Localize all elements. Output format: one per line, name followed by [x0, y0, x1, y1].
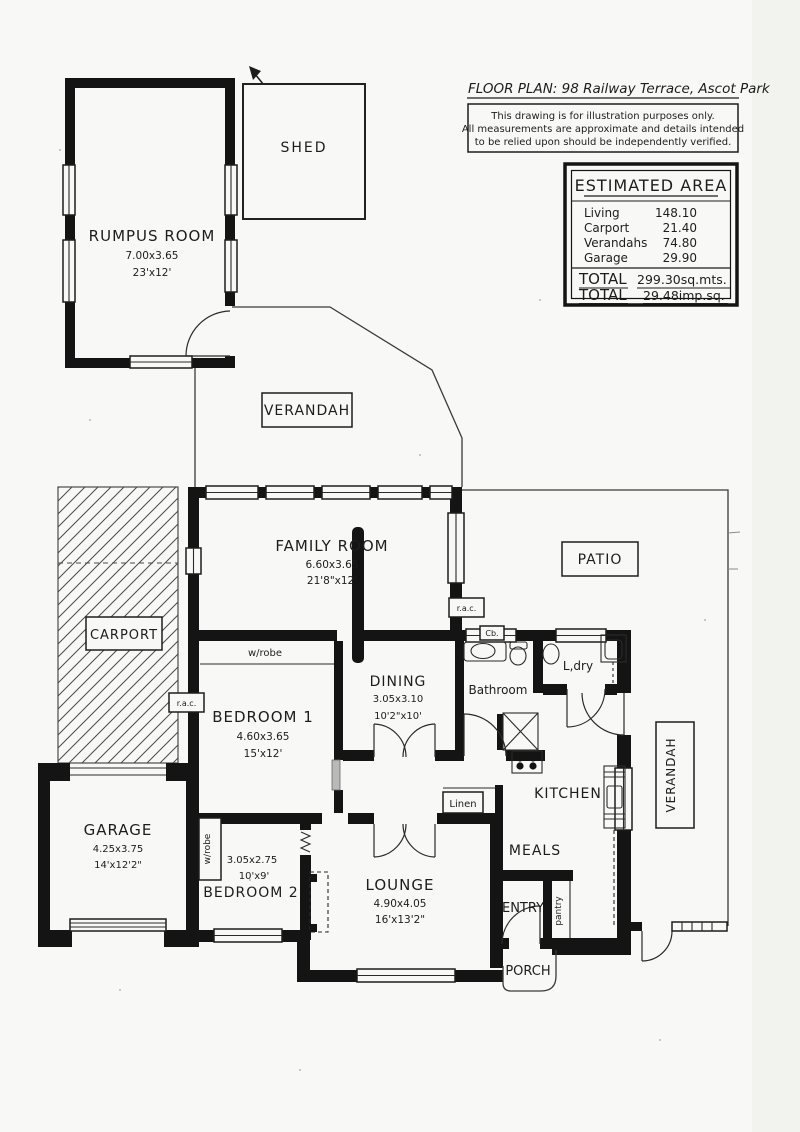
- verandah-top-text: VERANDAH: [264, 403, 350, 419]
- shed-room: SHED: [243, 84, 365, 219]
- bedroom1-dim-imperial: 15'x12': [244, 748, 283, 760]
- pantry-label: pantry: [554, 896, 564, 926]
- shed-label: SHED: [280, 140, 327, 156]
- family-dim-metric: 6.60x3.65: [306, 559, 359, 571]
- disclaimer-line-1: This drawing is for illustration purpose…: [490, 111, 714, 122]
- area-table-title: ESTIMATED AREA: [575, 176, 728, 195]
- rumpus-dim-metric: 7.00x3.65: [126, 250, 179, 262]
- dining-dim-metric: 3.05x3.10: [373, 694, 423, 705]
- carport-label: CARPORT: [90, 628, 158, 643]
- family-dim-imperial: 21'8"x12': [307, 575, 357, 587]
- entry-label: ENTRY: [502, 901, 544, 916]
- area-row-value: 29.90: [663, 251, 697, 265]
- patio-text: PATIO: [578, 552, 623, 568]
- rac-family-text: r.a.c.: [457, 604, 476, 613]
- linen-label: Linen: [449, 799, 476, 810]
- lounge-label: LOUNGE: [366, 876, 435, 894]
- area-row-value: 148.10: [655, 206, 697, 220]
- bathroom-label: Bathroom: [469, 683, 528, 697]
- floor-plan-drawing: FLOOR PLAN: 98 Railway Terrace, Ascot Pa…: [0, 0, 800, 1132]
- rumpus-room: RUMPUS ROOM 7.00x3.65 23'x12': [63, 78, 237, 368]
- disclaimer-line-3: to be relied upon should be independentl…: [475, 137, 732, 148]
- rumpus-dim-imperial: 23'x12': [133, 267, 172, 279]
- bedroom1-dim-metric: 4.60x3.65: [237, 731, 290, 743]
- lounge-dim-metric: 4.90x4.05: [374, 898, 427, 910]
- bedroom2-dim-imperial: 10'x9': [239, 871, 270, 882]
- verandah-top-label: VERANDAH: [262, 393, 352, 427]
- estimated-area-table: ESTIMATED AREA Living 148.10 Carport 21.…: [565, 164, 737, 305]
- bedroom2-robe-label: w/robe: [203, 833, 213, 864]
- area-total-label: TOTAL: [578, 286, 627, 304]
- laundry-label: L,dry: [563, 659, 593, 673]
- area-total-value: 29.48imp.sq.: [643, 288, 725, 303]
- verandah-right-text: VERANDAH: [664, 737, 678, 812]
- page-title: FLOOR PLAN: 98 Railway Terrace, Ascot Pa…: [468, 81, 771, 97]
- floor-plan-page: FLOOR PLAN: 98 Railway Terrace, Ascot Pa…: [0, 0, 800, 1132]
- title-block: FLOOR PLAN: 98 Railway Terrace, Ascot Pa…: [462, 81, 771, 152]
- garage-label: GARAGE: [84, 821, 153, 839]
- carport-area: CARPORT: [58, 487, 178, 763]
- bedroom2-dim-metric: 3.05x2.75: [227, 855, 277, 866]
- area-total-value: 299.30sq.mts.: [637, 272, 727, 287]
- scan-band: [752, 0, 800, 1132]
- area-row-value: 74.80: [663, 236, 697, 250]
- area-row-label: Verandahs: [584, 236, 647, 250]
- garage-door: [70, 919, 166, 931]
- area-row-label: Carport: [584, 221, 630, 235]
- bedroom1-robe-label: w/robe: [248, 648, 282, 659]
- garage-dim-imperial: 14'x12'2": [94, 860, 142, 871]
- bedroom2-label: BEDROOM 2: [203, 885, 298, 901]
- patio-label: PATIO: [562, 542, 638, 576]
- kitchen-label: KITCHEN: [534, 786, 602, 802]
- cupboard-text: Cb.: [485, 629, 498, 638]
- lounge-dim-imperial: 16'x13'2": [375, 914, 425, 926]
- dining-dim-imperial: 10'2"x10': [374, 711, 422, 722]
- dining-label: DINING: [370, 674, 427, 690]
- rumpus-label: RUMPUS ROOM: [89, 227, 216, 245]
- area-row-label: Living: [584, 206, 620, 220]
- garage-dim-metric: 4.25x3.75: [93, 844, 143, 855]
- bedroom1-label: BEDROOM 1: [212, 708, 314, 726]
- area-row-value: 21.40: [663, 221, 697, 235]
- bedroom1-door-panel: [332, 760, 340, 790]
- family-label: FAMILY ROOM: [275, 537, 388, 555]
- area-row-label: Garage: [584, 251, 628, 265]
- disclaimer-line-2: All measurements are approximate and det…: [462, 124, 744, 135]
- meals-label: MEALS: [509, 843, 561, 859]
- rac-carport-text: r.a.c.: [177, 699, 196, 708]
- porch-label: PORCH: [505, 964, 550, 979]
- rumpus-door-opening: [224, 306, 236, 356]
